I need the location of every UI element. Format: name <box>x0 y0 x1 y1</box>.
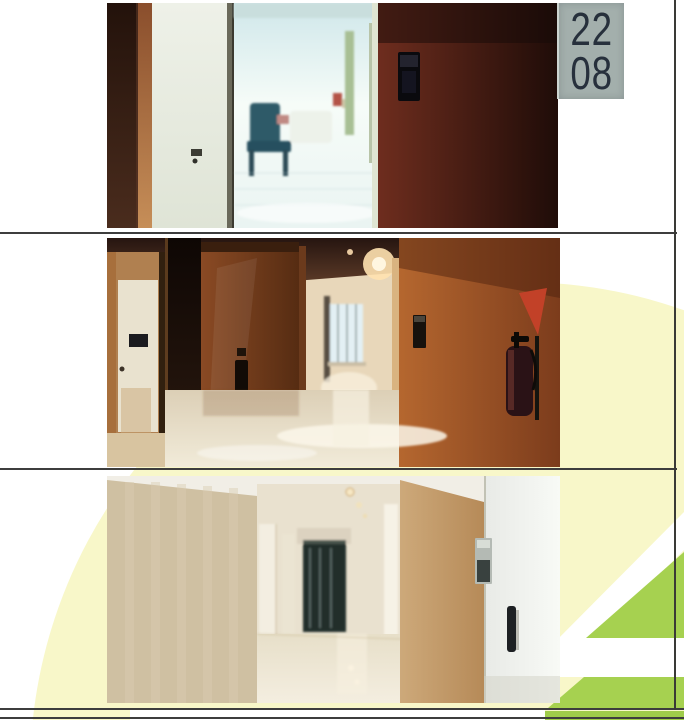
photo-apartment-entrance <box>107 3 558 228</box>
separator-line-2 <box>0 468 677 470</box>
separator-line-4 <box>0 717 684 719</box>
photo-2-art <box>107 238 560 467</box>
room-number-line2: 08 <box>570 51 613 95</box>
separator-line-3 <box>0 708 684 710</box>
photo-3-art <box>107 476 560 703</box>
room-number-line1: 22 <box>570 7 613 51</box>
photo-sheet-page: 22 08 <box>0 0 684 720</box>
separator-line-1 <box>0 232 677 234</box>
photo-corridor-orange <box>107 238 560 467</box>
photo-corridor-bright <box>107 476 560 703</box>
right-border-line <box>674 0 676 710</box>
photo-1-art <box>107 3 558 228</box>
room-number-sign: 22 08 <box>557 3 624 99</box>
